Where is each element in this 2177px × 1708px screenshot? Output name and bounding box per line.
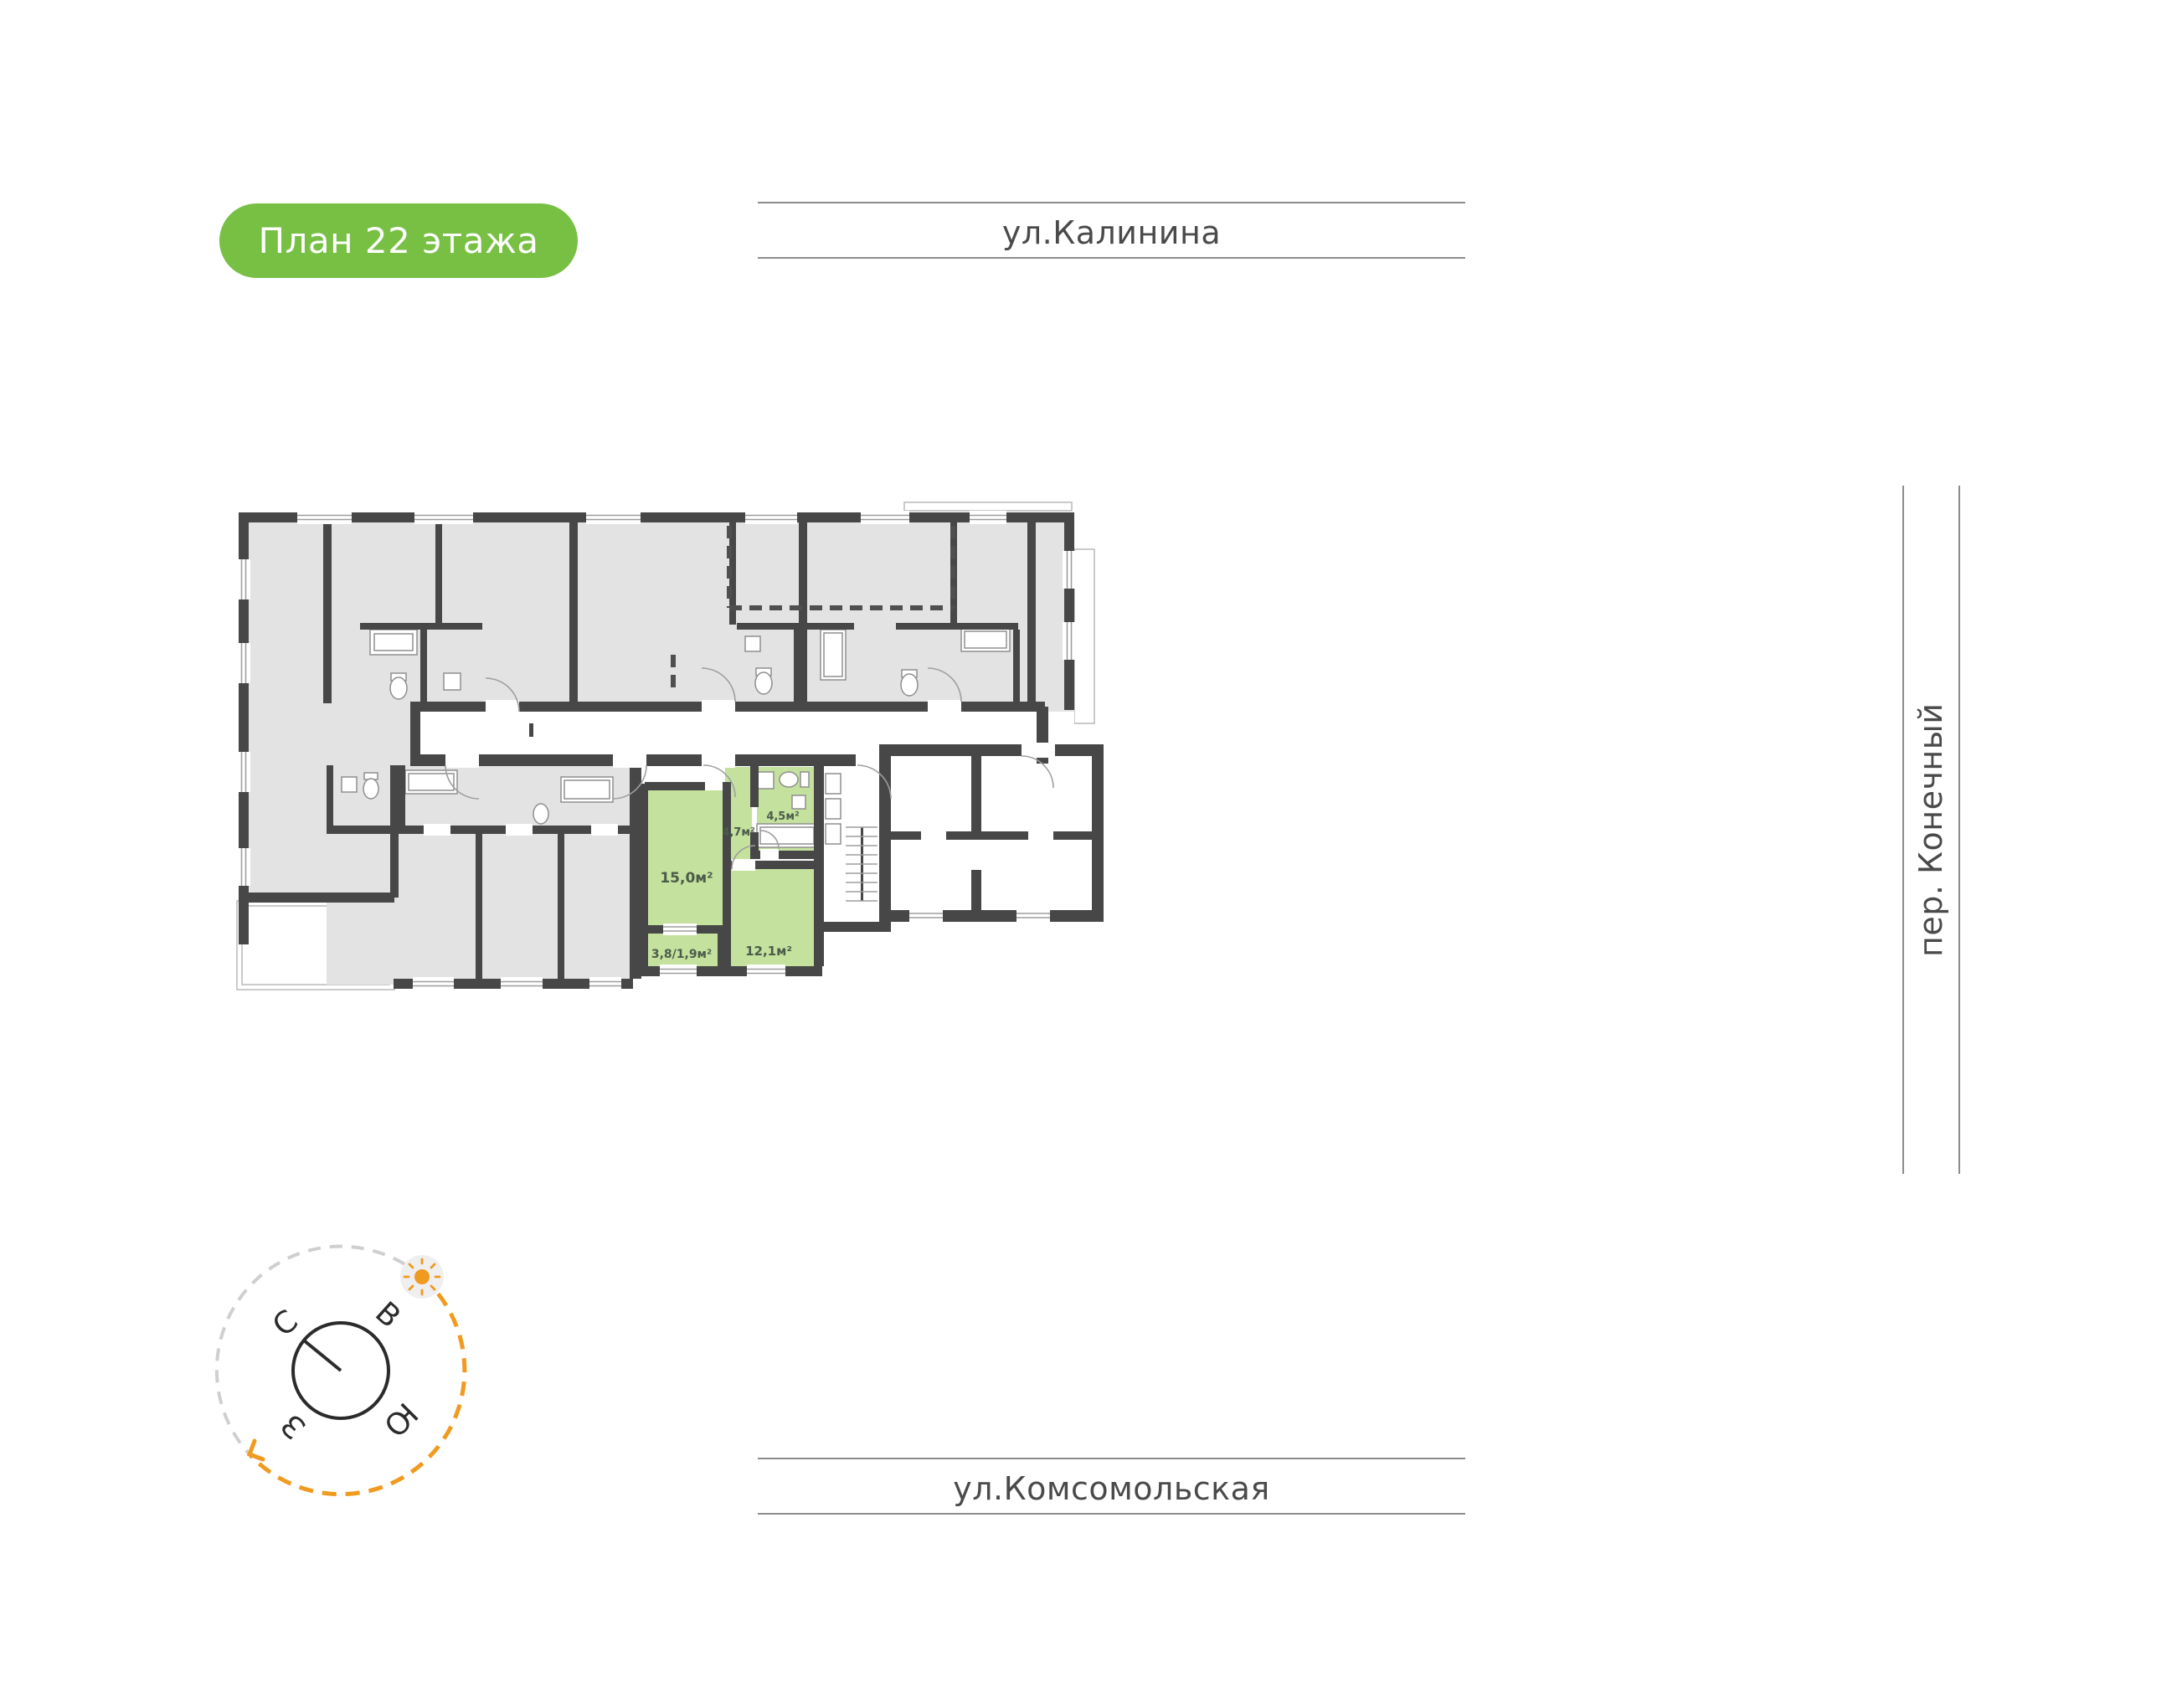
- compass-letter-east: В: [368, 1295, 407, 1335]
- label-balcony-area: 3,8/1,9м²: [651, 948, 712, 961]
- street-bottom-line-lower: [758, 1513, 1465, 1515]
- label-living-area: 15,0м²: [660, 870, 713, 887]
- label-bath-area: 4,5м²: [766, 810, 799, 823]
- street-top-line-upper: [758, 202, 1465, 203]
- street-bottom-line-upper: [758, 1458, 1465, 1459]
- street-top-label: ул.Калинина: [758, 209, 1465, 256]
- compass-arrowhead: [250, 1441, 263, 1459]
- label-bedroom-area: 12,1м²: [745, 944, 792, 959]
- page: План 22 этажа ул.Калинина ул.Комсомольск…: [0, 0, 2177, 1708]
- floor-badge-label: План 22 этажа: [258, 220, 538, 261]
- street-right-line-right: [1958, 486, 1960, 1174]
- room-living[interactable]: [648, 790, 724, 925]
- compass-letter-south: Ю: [377, 1396, 424, 1443]
- floor-badge: План 22 этажа: [219, 203, 578, 278]
- street-top-line-lower: [758, 257, 1465, 259]
- compass-letter-north: С: [266, 1304, 305, 1344]
- floorplan-svg: 15,0м² 4,7м² 4,5м² 12,1м² 3,8/1,9м²: [234, 501, 1109, 1003]
- street-right-label: пер. Конечный: [1906, 486, 1956, 1174]
- sun-icon: [400, 1255, 444, 1299]
- street-right-line-left: [1902, 486, 1904, 1174]
- compass-letter-west: З: [275, 1407, 312, 1444]
- street-bottom-label: ул.Комсомольская: [758, 1465, 1465, 1512]
- compass: С В Ю З: [214, 1239, 481, 1524]
- label-hall-area: 4,7м²: [722, 826, 754, 839]
